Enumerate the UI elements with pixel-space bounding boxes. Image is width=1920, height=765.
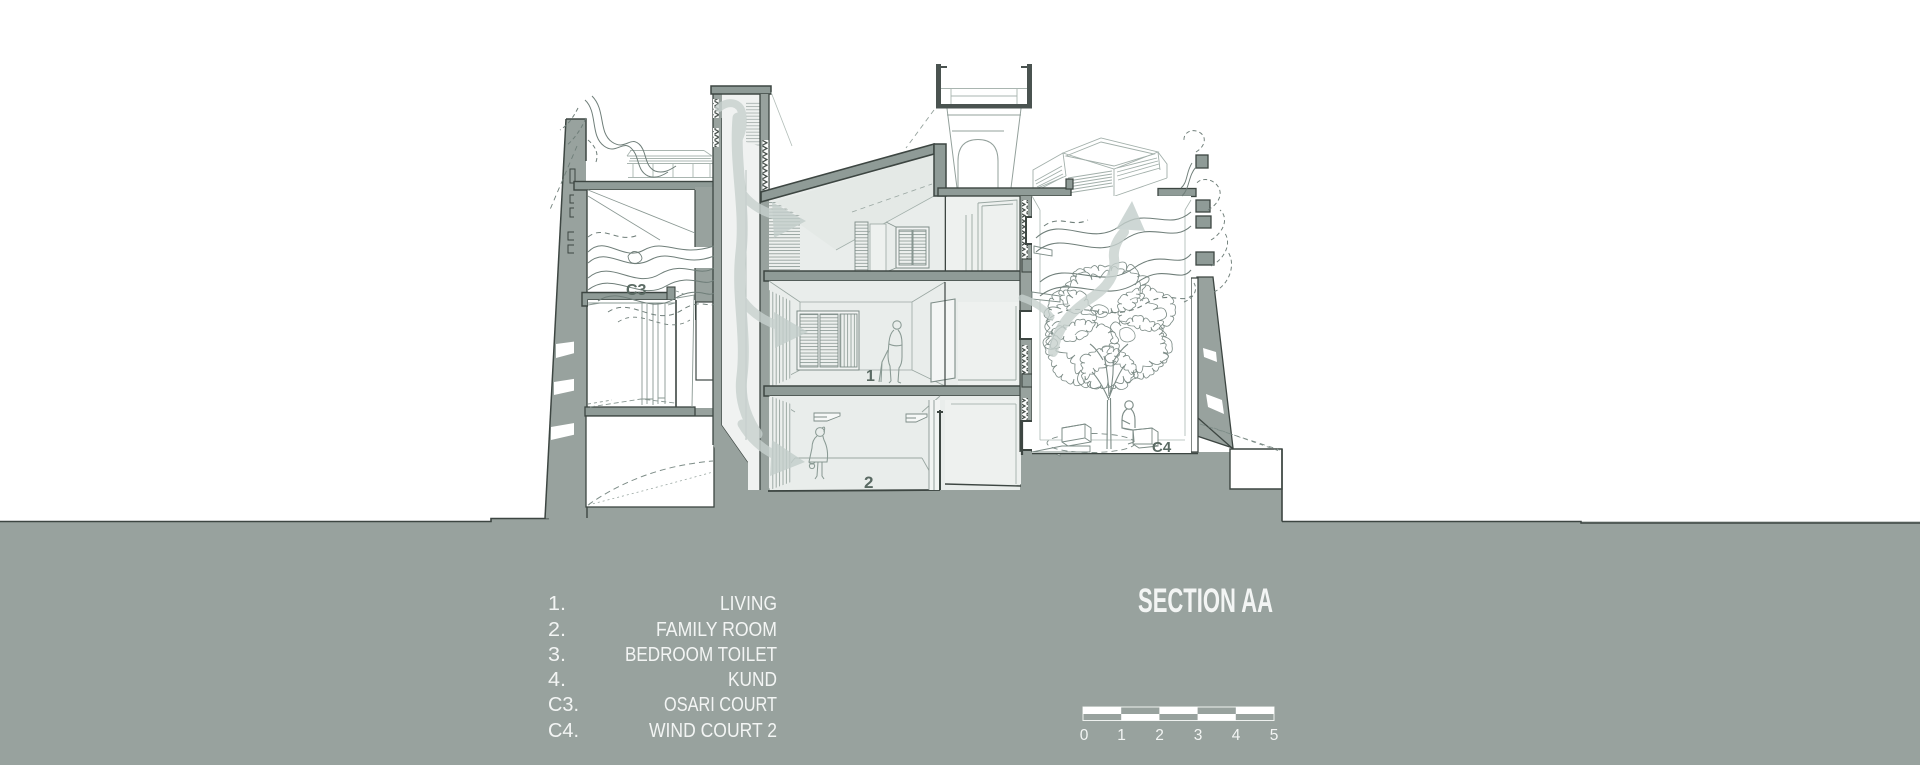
svg-text:C4.: C4. (548, 719, 579, 742)
svg-text:FAMILY ROOM: FAMILY ROOM (656, 618, 777, 641)
svg-text:C4: C4 (1152, 439, 1172, 456)
svg-text:3: 3 (1194, 727, 1203, 744)
svg-text:LIVING: LIVING (720, 592, 777, 615)
svg-text:5: 5 (1270, 727, 1279, 744)
svg-text:0: 0 (1080, 727, 1089, 744)
svg-text:SECTION AA: SECTION AA (1138, 582, 1273, 620)
svg-text:2: 2 (1155, 727, 1164, 744)
svg-text:1.: 1. (548, 592, 566, 615)
svg-text:2.: 2. (548, 618, 566, 641)
svg-text:WIND COURT 2: WIND COURT 2 (649, 719, 777, 742)
svg-text:C3: C3 (626, 282, 647, 299)
svg-text:1: 1 (866, 368, 875, 385)
svg-text:4.: 4. (548, 668, 566, 691)
svg-text:1: 1 (1117, 727, 1126, 744)
svg-text:BEDROOM TOILET: BEDROOM TOILET (625, 643, 777, 666)
svg-text:4: 4 (1232, 727, 1241, 744)
svg-text:C3.: C3. (548, 693, 579, 716)
svg-text:3.: 3. (548, 643, 566, 666)
svg-text:KUND: KUND (728, 668, 777, 691)
svg-text:2: 2 (864, 473, 873, 492)
svg-text:OSARI COURT: OSARI COURT (664, 693, 777, 716)
